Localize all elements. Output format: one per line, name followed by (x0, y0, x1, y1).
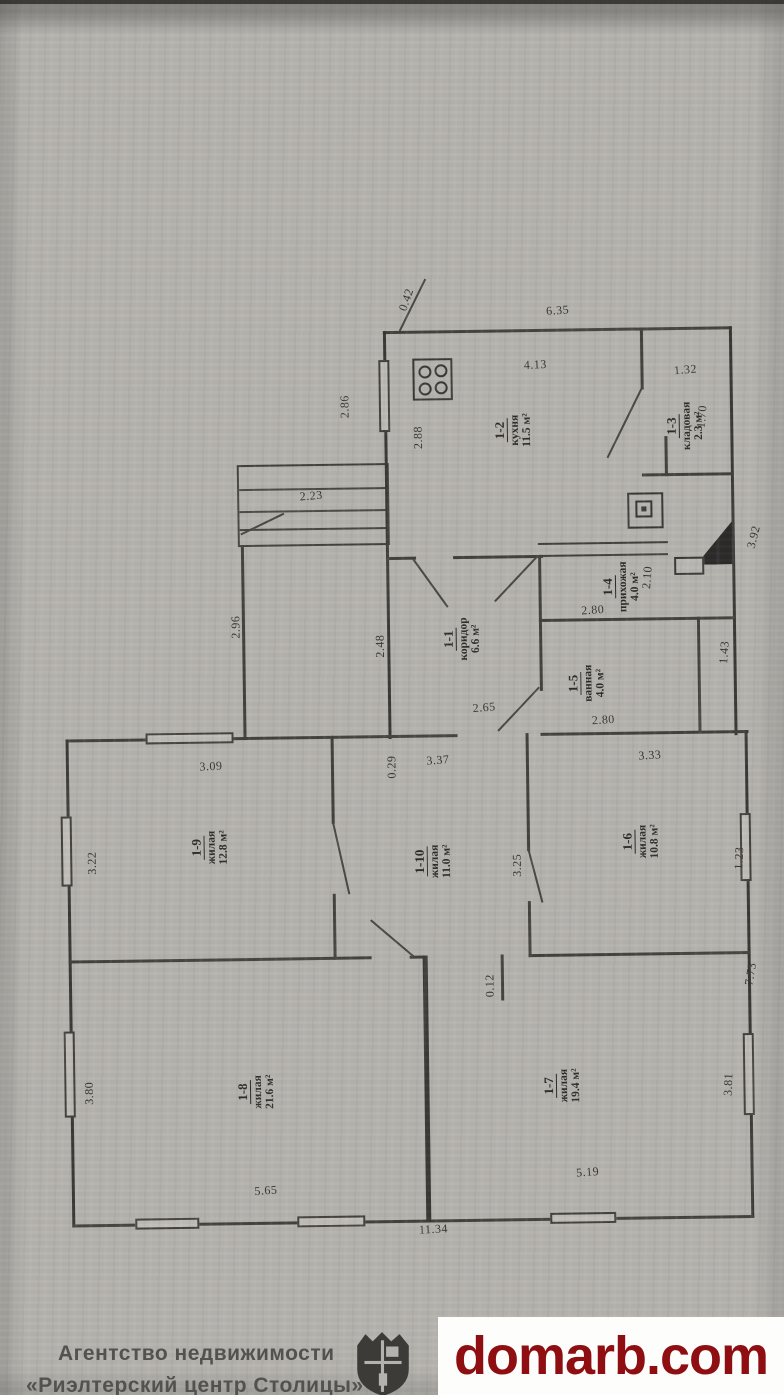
dimension-label: 2.23 (299, 488, 323, 505)
room-area: 2.3 м² (693, 401, 706, 449)
room-name: жилая (251, 1075, 264, 1109)
door-swing-line (332, 821, 351, 895)
room-label: 1-10жилая11.0 м² (411, 844, 454, 878)
room-number: 1-1 (442, 627, 458, 651)
agency-name-line2: «Риэлтерский центр Столицы» (26, 1374, 364, 1395)
dimension-label: 2.86 (337, 395, 352, 418)
dimension-label: 2.88 (411, 426, 426, 449)
room-label: 1-8жилая21.6 м² (234, 1075, 277, 1110)
room-name: жилая (557, 1068, 570, 1102)
dimension-label: 1.32 (673, 361, 697, 378)
room-label: 1-9жилая12.8 м² (187, 830, 230, 865)
kitchen-wall-double-line (538, 541, 668, 557)
room-area: 6.6 м² (470, 617, 483, 660)
room-number: 1-4 (601, 575, 617, 599)
door-swing-line (607, 386, 644, 459)
room-label: 1-7жилая19.4 м² (540, 1068, 583, 1103)
room-area: 11.5 м² (521, 413, 534, 447)
room-area: 10.8 м² (649, 824, 662, 858)
dimension-label: 3.09 (199, 758, 223, 774)
wall (423, 956, 432, 1222)
window-symbol (550, 1212, 616, 1224)
wall (539, 616, 736, 622)
boiler-icon (627, 492, 663, 528)
dimension-label: 2.80 (591, 712, 615, 728)
wall (541, 730, 749, 736)
dimension-label: 4.13 (524, 357, 548, 373)
room-label: 1-2кухня11.5 м² (491, 413, 534, 447)
wall (241, 545, 247, 740)
dimension-label: 2.65 (472, 699, 496, 716)
wall (333, 894, 337, 960)
room-label: 1-4прихожая4.0 м² (599, 561, 643, 612)
window-symbol (743, 1033, 755, 1115)
entrance-step-icon (674, 557, 704, 575)
door-swing-line (412, 559, 448, 608)
wall (529, 951, 751, 957)
room-name: коридор (457, 617, 470, 660)
dimension-label: 3.37 (426, 752, 450, 768)
agency-logo-shield-icon (352, 1330, 414, 1395)
room-label: 1-3кладовая2.3 м² (662, 401, 706, 450)
wall (69, 956, 372, 963)
room-name: прихожая (616, 561, 629, 612)
room-area: 11.0 м² (441, 844, 454, 878)
room-label: 1-6жилая10.8 м² (618, 824, 661, 859)
agency-name-line1: Агентство недвижимости (58, 1342, 335, 1366)
room-name: жилая (428, 845, 441, 879)
dimension-label: 3.81 (720, 1073, 736, 1097)
room-label: 1-5ванная4.0 м² (564, 664, 607, 702)
dimension-label: 1.43 (716, 640, 733, 664)
dimension-label: 0.12 (482, 974, 497, 997)
dimension-label: 6.35 (546, 302, 570, 318)
watermark-text: domarb.com (454, 1325, 768, 1387)
window-symbol (135, 1218, 199, 1230)
wall (528, 901, 532, 957)
window-symbol (145, 732, 233, 744)
wall (453, 555, 543, 559)
room-number: 1-6 (620, 830, 636, 854)
room-area: 21.6 м² (264, 1075, 277, 1109)
door-swing-line (494, 556, 538, 603)
room-number: 1-8 (236, 1080, 252, 1104)
dimension-label: 2.48 (373, 635, 388, 658)
room-name: кладовая (680, 402, 693, 450)
dimension-label: 0.42 (396, 286, 418, 313)
window-symbol (61, 816, 73, 886)
watermark-box: domarb.com (438, 1317, 784, 1395)
wall (66, 740, 76, 1228)
porch-steps (237, 463, 390, 547)
wall (331, 736, 335, 824)
room-area: 19.4 м² (570, 1068, 583, 1102)
wall (640, 327, 644, 389)
dimension-label: 3.92 (744, 524, 764, 550)
stove-icon (412, 358, 453, 401)
dimension-label: 5.19 (576, 1164, 600, 1180)
wall (697, 617, 702, 733)
room-number: 1-2 (493, 419, 509, 443)
room-number: 1-10 (413, 847, 429, 877)
room-label: 1-1коридор6.6 м² (439, 617, 482, 661)
room-area: 4.0 м² (594, 664, 607, 701)
wall (539, 621, 543, 691)
window-symbol (64, 1031, 76, 1117)
wall (538, 555, 542, 622)
room-area: 12.8 м² (218, 830, 231, 864)
room-name: жилая (636, 824, 649, 858)
window-symbol (297, 1215, 365, 1227)
dimension-label: 3.22 (85, 852, 100, 875)
dimension-label: 7.73 (742, 961, 760, 986)
door-swing-line (527, 848, 543, 903)
dimension-label: 0.29 (384, 755, 399, 778)
room-number: 1-5 (566, 672, 582, 696)
room-number: 1-3 (665, 414, 681, 438)
dimension-label: 3.80 (82, 1082, 97, 1105)
room-area: 4.0 м² (629, 561, 642, 612)
room-number: 1-7 (542, 1074, 558, 1098)
room-name: кухня (508, 413, 521, 447)
wall (642, 472, 734, 476)
wall (383, 326, 732, 334)
dimension-label: 1.23 (731, 846, 747, 870)
floorplan-drawing: 0.426.354.131.322.862.881.702.232.962.48… (0, 0, 784, 1395)
dimension-label: 5.65 (254, 1183, 278, 1199)
dimension-label: 3.25 (510, 854, 525, 877)
door-swing-line (370, 919, 415, 957)
dimension-label: 2.96 (228, 616, 243, 639)
window-symbol (378, 360, 390, 432)
dimension-label: 3.33 (638, 747, 662, 763)
wall (66, 734, 458, 742)
scanned-floorplan-photo: 0.426.354.131.322.862.881.702.232.962.48… (0, 0, 784, 1395)
wall (501, 954, 505, 1000)
dimension-label: 11.34 (419, 1221, 449, 1237)
room-name: ванная (582, 665, 595, 702)
room-number: 1-9 (189, 836, 205, 860)
door-swing-line (497, 687, 540, 732)
room-name: жилая (205, 830, 218, 864)
wall (526, 733, 531, 851)
